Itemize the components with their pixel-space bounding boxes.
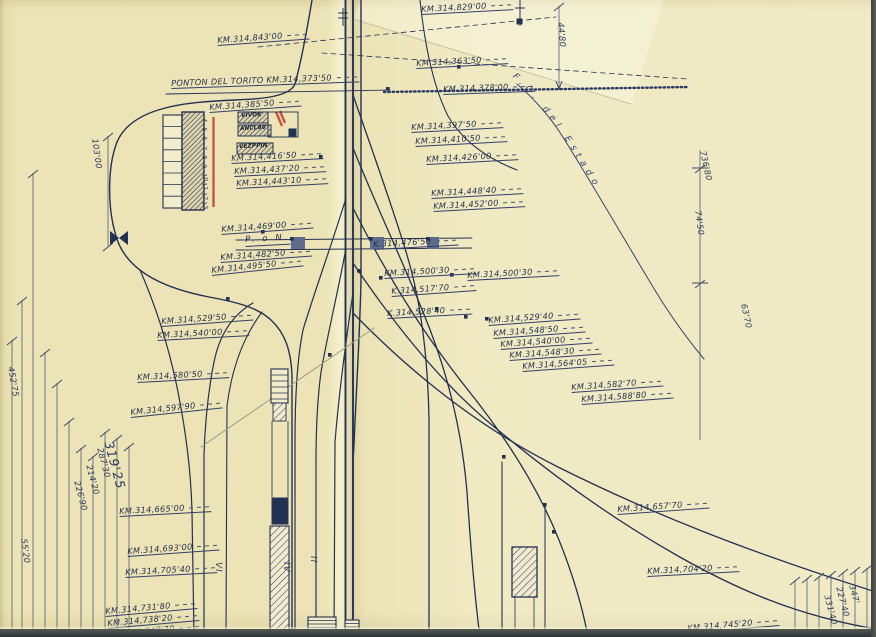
scan-edge-bottom bbox=[0, 629, 876, 637]
structures bbox=[110, 0, 556, 637]
dimension-arrows bbox=[7, 170, 134, 461]
track-drawing: F.C. del Estado bbox=[0, 0, 876, 637]
annex-boxes bbox=[237, 112, 298, 154]
platform-structures bbox=[270, 369, 289, 637]
signal-symbols bbox=[338, 0, 525, 26]
scan-edge-right bbox=[871, 0, 876, 637]
station-building bbox=[163, 112, 204, 210]
dimension-lines bbox=[7, 3, 872, 637]
track-plan-sheet: F.C. del Estado KM.314,829'00KM.314,843'… bbox=[0, 0, 876, 637]
track-lines bbox=[110, 0, 876, 637]
loading-dock bbox=[512, 547, 537, 637]
switch-marks bbox=[226, 65, 556, 534]
